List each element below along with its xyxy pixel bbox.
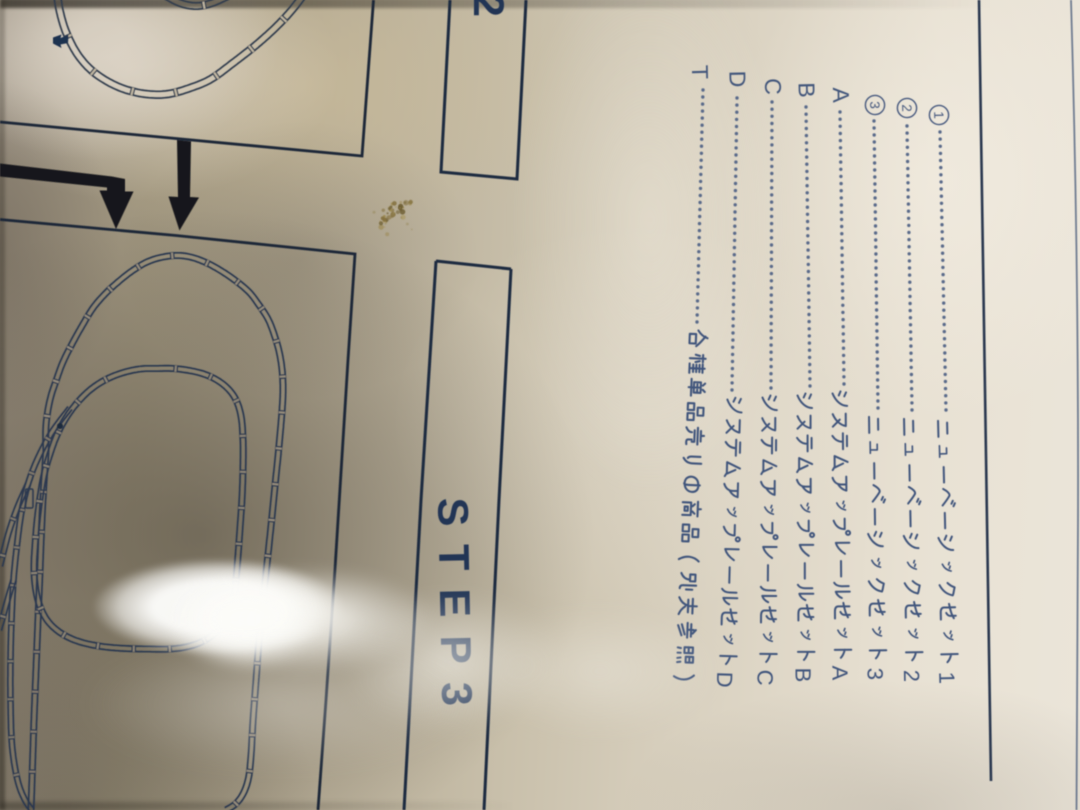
svg-text:A: A (827, 665, 852, 680)
svg-text:3: 3 (863, 668, 888, 681)
svg-text:B: B (790, 668, 815, 683)
svg-text:1: 1 (934, 671, 959, 684)
svg-text:C: C (752, 670, 777, 686)
svg-text:3: 3 (867, 101, 882, 109)
svg-text:2: 2 (464, 0, 512, 17)
svg-text:2: 2 (899, 104, 914, 112)
svg-text:2: 2 (899, 669, 924, 682)
svg-text:1: 1 (931, 111, 946, 119)
svg-text:D: D (724, 70, 750, 87)
svg-text:C: C (760, 78, 786, 95)
svg-text:B: B (794, 82, 820, 98)
svg-text:A: A (828, 87, 854, 104)
svg-text:T: T (687, 65, 713, 80)
